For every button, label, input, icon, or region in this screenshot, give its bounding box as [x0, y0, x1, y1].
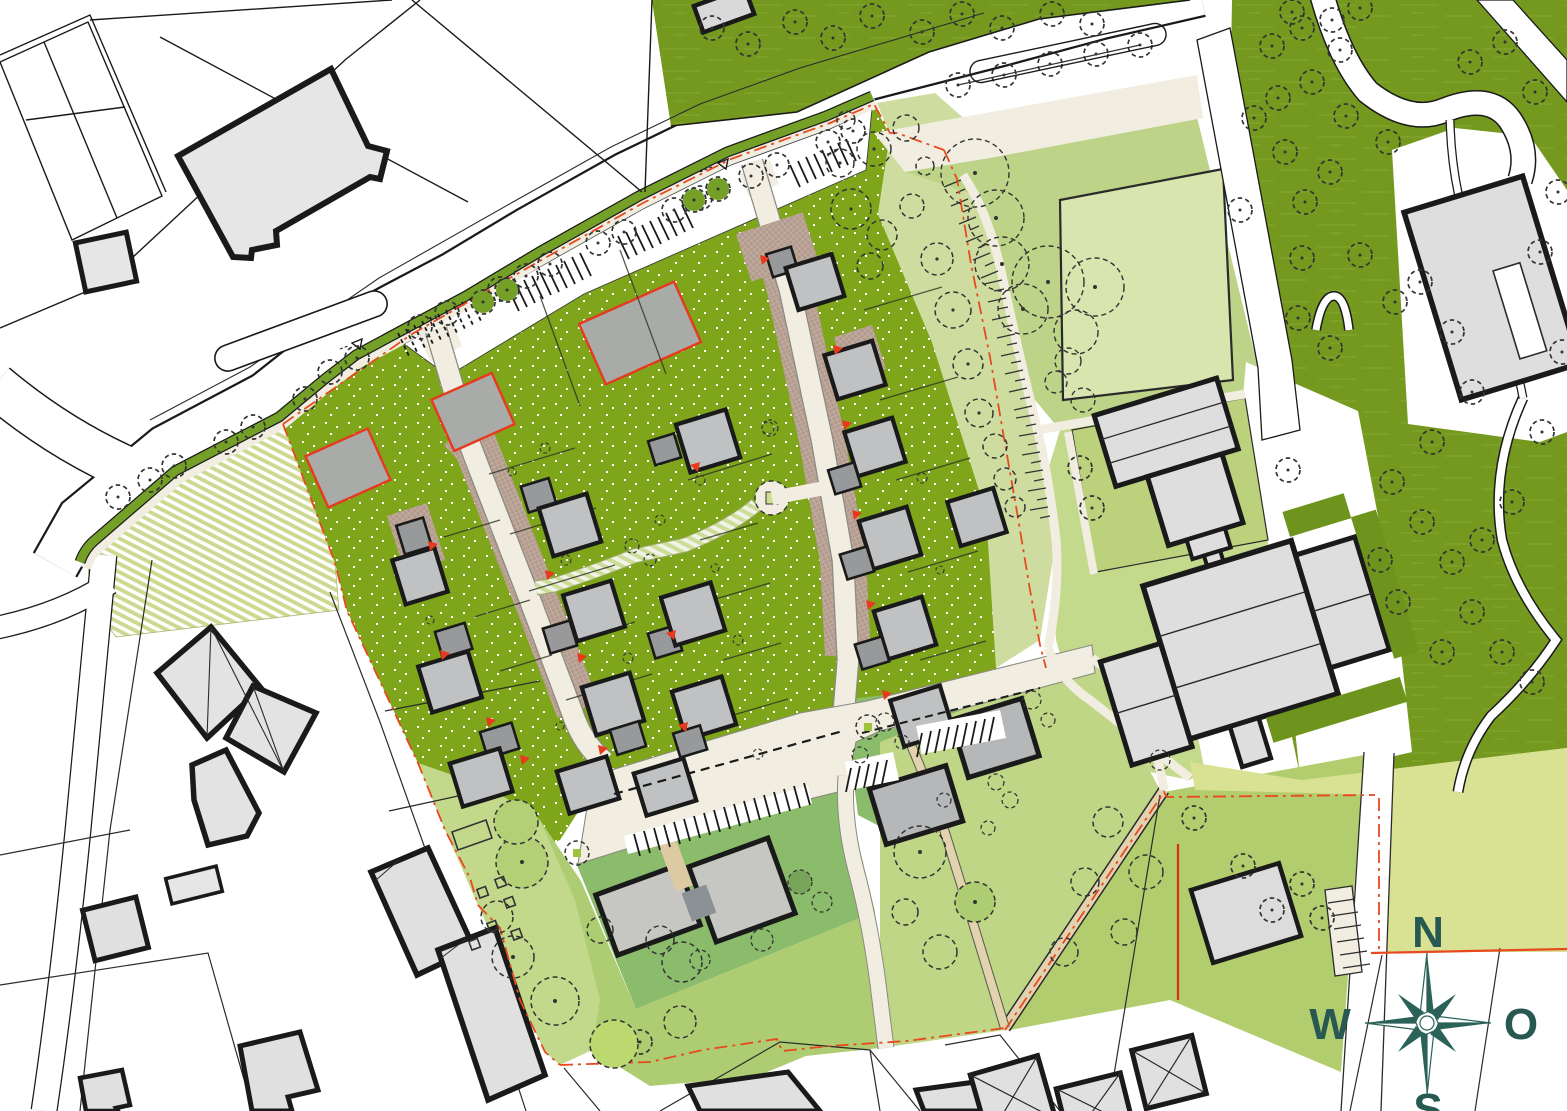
svg-text:W: W	[1309, 1000, 1351, 1049]
svg-text:O: O	[1504, 1000, 1538, 1049]
svg-text:N: N	[1412, 908, 1444, 957]
